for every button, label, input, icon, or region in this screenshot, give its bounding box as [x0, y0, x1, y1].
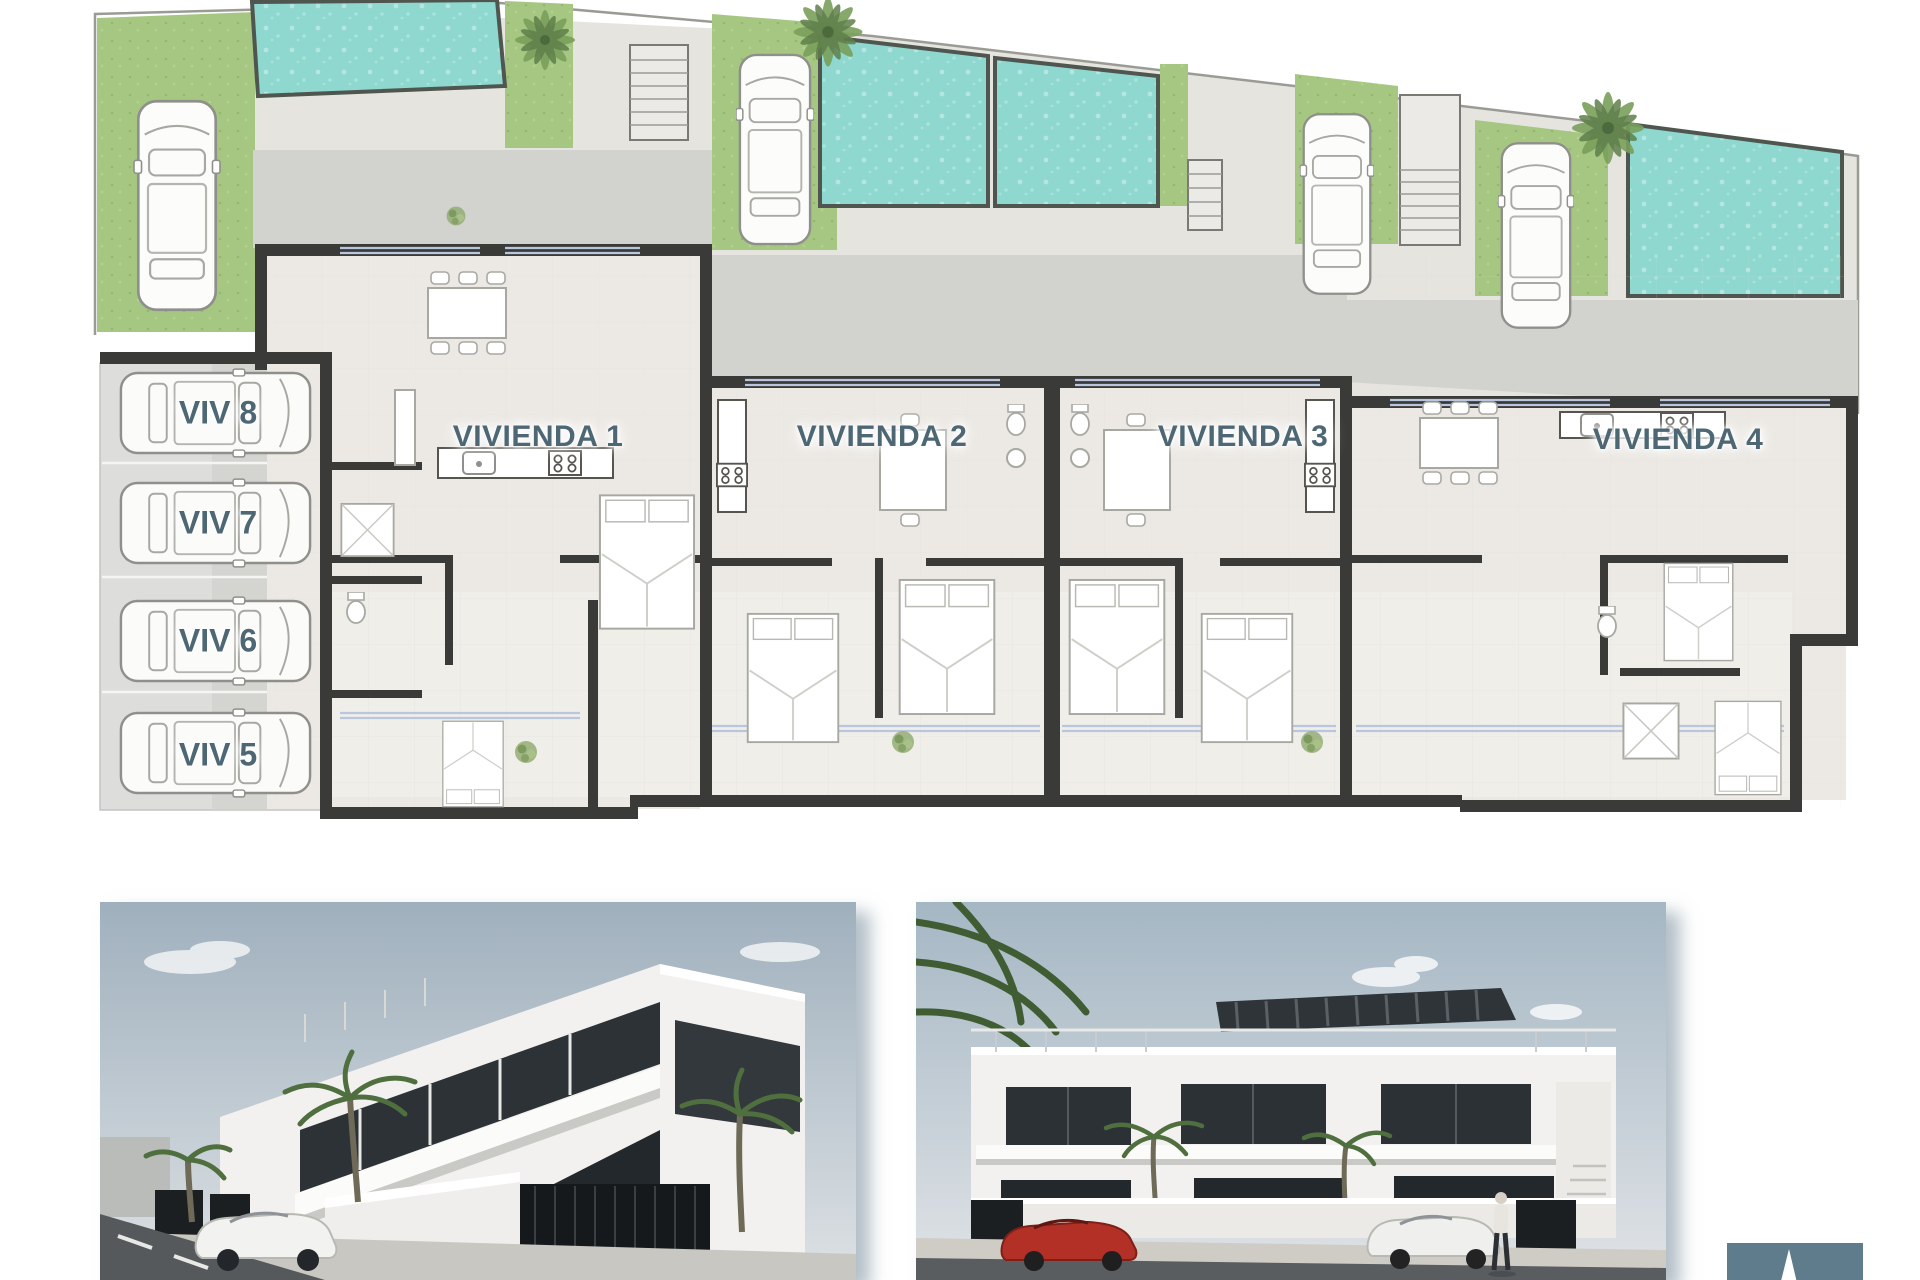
- compass-arrow-logo: [1727, 1243, 1863, 1280]
- parking-label-viv5: VIV 5: [179, 737, 257, 774]
- arrow-icon: [1775, 1249, 1807, 1280]
- staircase-1: [630, 45, 688, 140]
- render-street-corner: [100, 902, 856, 1280]
- staircase-2: [1400, 95, 1460, 245]
- parking-label-viv7: VIV 7: [179, 505, 257, 542]
- plan-sheet: VIVIENDA 1 VIVIENDA 2 VIVIENDA 3 VIVIEND…: [0, 0, 1920, 1280]
- car-garden-3: [1300, 114, 1374, 293]
- pool-3: [995, 58, 1158, 206]
- unit-label-vivienda-1: VIVIENDA 1: [453, 420, 624, 454]
- staircase-3: [1188, 160, 1222, 230]
- render-street-front: [916, 902, 1666, 1280]
- unit-label-vivienda-4: VIVIENDA 4: [1593, 423, 1764, 457]
- parking-label-viv8: VIV 8: [179, 395, 257, 432]
- parking-label-viv6: VIV 6: [179, 623, 257, 660]
- unit-label-vivienda-2: VIVIENDA 2: [797, 420, 968, 454]
- unit-label-vivienda-3: VIVIENDA 3: [1158, 420, 1329, 454]
- upper-windows: [1006, 1084, 1531, 1145]
- pool-2: [820, 36, 988, 206]
- pool-1: [252, 0, 505, 96]
- car-garden-4: [1498, 143, 1574, 327]
- car-garden-2: [736, 55, 814, 244]
- car-garden-1: [134, 101, 220, 310]
